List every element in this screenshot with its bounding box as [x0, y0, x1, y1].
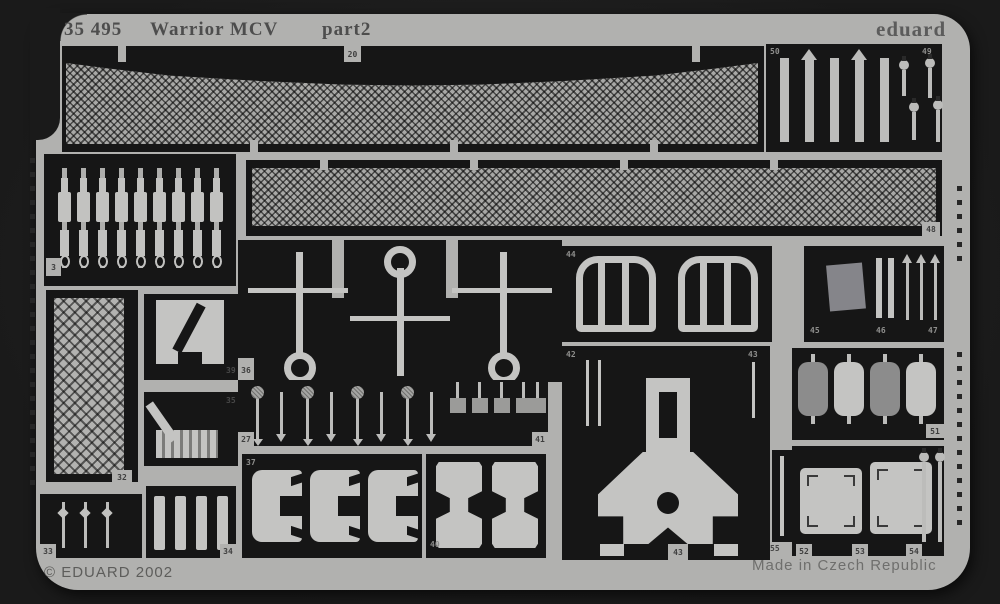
part-27-arrow-pin: [430, 392, 433, 438]
part-27-knob-pin: [306, 398, 309, 440]
part-55-pin: [780, 456, 784, 536]
part-52-plate: [800, 468, 862, 534]
part-label-55: 55: [770, 544, 780, 553]
part-37-claw: [368, 470, 418, 542]
arch-mullion: [598, 263, 605, 325]
part-44-arch-frame: [576, 256, 656, 332]
part-33-pin: [62, 502, 65, 548]
part-27-knob-pin: [406, 398, 409, 440]
right-edge-dots-lower: [957, 352, 962, 532]
photoetch-sheet-photo: 35 495 Warrior MCV part2 eduard 20 50 49…: [0, 0, 1000, 604]
fret-tab: [650, 140, 658, 152]
part-27-knob-pin: [356, 398, 359, 440]
part-label-43: 43: [748, 350, 758, 359]
part-49-pin: [936, 110, 940, 142]
sheet-part-label: part2: [322, 19, 371, 41]
part-50-bar: [855, 58, 864, 142]
part-49-pin: [902, 70, 906, 96]
part-label-35: 35: [226, 396, 236, 405]
part-27-arrow-pin: [280, 392, 283, 438]
part-34-bar: [196, 496, 207, 550]
part-47-pin: [934, 262, 937, 320]
corner-mark: [877, 516, 888, 527]
arch-mullion: [700, 263, 707, 325]
arch-mullion: [724, 263, 731, 325]
part-3-pin: [214, 168, 219, 268]
part-label-45: 45: [810, 326, 820, 335]
part-label-54: 54: [906, 544, 922, 558]
part-47-pin: [906, 262, 909, 320]
part-27-arrow-pin: [330, 392, 333, 438]
part-43-foot: [600, 544, 624, 556]
part-3-pin: [157, 168, 162, 268]
part-36-crossbar: [248, 288, 348, 293]
fret-tab: [770, 160, 778, 170]
part-34-bar: [175, 496, 186, 550]
part-label-50: 50: [770, 47, 780, 56]
part-39-notch: [178, 352, 202, 364]
part-54-pin: [938, 462, 942, 542]
part-50-bar: [780, 58, 789, 142]
fret-tab: [692, 46, 700, 62]
origin-text: Made in Czech Republic: [752, 557, 937, 574]
part-50-bar: [880, 58, 889, 142]
claw-cutout: [338, 496, 362, 516]
part-34-bar: [154, 496, 165, 550]
fret-tab: [620, 160, 628, 170]
part-3-pin: [62, 168, 67, 268]
part-49-pin: [912, 112, 916, 140]
part-27-knob-pin: [256, 398, 259, 440]
bracket-hole: [657, 492, 679, 514]
part-label-40: 40: [430, 540, 440, 549]
fret-tab: [470, 160, 478, 170]
claw-cutout: [280, 496, 304, 516]
part-36-crossbar: [452, 288, 552, 293]
product-name: Warrior MCV: [150, 19, 278, 41]
part-33-pin: [106, 502, 109, 548]
part-48-grille-mesh: [252, 168, 936, 226]
part-3-pin: [138, 168, 143, 268]
part-54-pin: [922, 462, 926, 542]
part-41-square: [530, 398, 546, 413]
part-36-rod: [500, 252, 507, 364]
part-3-pin: [100, 168, 105, 268]
part-label-47: 47: [928, 326, 938, 335]
part-45-plate: [826, 263, 866, 312]
corner-mark: [844, 475, 855, 486]
part-label-37: 37: [246, 458, 256, 467]
part-39-slot: [172, 303, 205, 354]
part-51-plate: [906, 362, 936, 416]
part-34-bar: [217, 496, 228, 550]
part-47-pin: [920, 262, 923, 320]
part-36-rod: [296, 252, 303, 364]
part-label-27: 27: [238, 432, 254, 446]
part-label-39: 39: [226, 366, 236, 375]
corner-mark: [877, 469, 888, 480]
part-50-bar: [805, 58, 814, 142]
fret-tab: [118, 46, 126, 62]
part-49-pin: [928, 68, 932, 98]
part-36-rod: [397, 268, 404, 376]
part-label-3: 3: [46, 258, 61, 276]
part-label-42: 42: [566, 350, 576, 359]
part-33-pin: [84, 502, 87, 548]
part-42-pin: [752, 362, 755, 418]
part-label-46: 46: [876, 326, 886, 335]
part-50-bar: [830, 58, 839, 142]
part-37-claw: [252, 470, 302, 542]
part-label-41: 41: [532, 432, 548, 446]
catalog-number: 35 495: [64, 19, 122, 41]
part-3-pin: [195, 168, 200, 268]
right-edge-dots-upper: [957, 186, 962, 268]
part-51-plate: [834, 362, 864, 416]
part-39-plate: [156, 300, 224, 364]
part-32-hatched-plate: [54, 298, 124, 474]
corner-mark: [807, 516, 818, 527]
part-3-pin: [176, 168, 181, 268]
part-43-foot: [714, 544, 738, 556]
part-46-bar: [876, 258, 882, 318]
part-37-claw: [310, 470, 360, 542]
part-label-44: 44: [566, 250, 576, 259]
part-41-square: [494, 398, 510, 413]
left-edge-dots: [30, 158, 35, 494]
part-label-20: 20: [344, 46, 361, 62]
part-41-square: [472, 398, 488, 413]
part-label-48: 48: [922, 222, 940, 236]
bracket-slot: [659, 392, 677, 438]
part-label-52: 52: [796, 544, 812, 558]
fret-tab: [450, 140, 458, 152]
fret-top-left-notch: [30, 8, 60, 140]
part-51-plate: [870, 362, 900, 416]
part-label-36: 36: [238, 358, 254, 382]
part-46-bar: [888, 258, 894, 318]
part-43-bracket-trunk: [646, 378, 690, 454]
copyright-text: © EDUARD 2002: [44, 564, 173, 581]
part-label-53: 53: [852, 544, 868, 558]
part-label-43-bottom: 43: [668, 544, 688, 560]
part-3-pin: [81, 168, 86, 268]
part-42-pin: [586, 360, 589, 426]
fret-tab: [250, 140, 258, 152]
part-label-33: 33: [40, 544, 56, 558]
part-label-32: 32: [112, 470, 132, 484]
brand-logo: eduard: [876, 17, 946, 42]
part-42-pin: [598, 360, 601, 426]
corner-mark: [807, 475, 818, 486]
part-label-51: 51: [926, 424, 944, 438]
arch-mullion: [622, 263, 629, 325]
part-41-square: [450, 398, 466, 413]
fret-tab: [320, 160, 328, 170]
part-44-arch-frame: [678, 256, 758, 332]
part-51-plate: [798, 362, 828, 416]
part-27-arrow-pin: [380, 392, 383, 438]
claw-cutout: [396, 496, 420, 516]
corner-mark: [844, 516, 855, 527]
part-label-34: 34: [220, 544, 236, 558]
part-3-pin: [119, 168, 124, 268]
part-36-crossbar: [350, 316, 450, 321]
